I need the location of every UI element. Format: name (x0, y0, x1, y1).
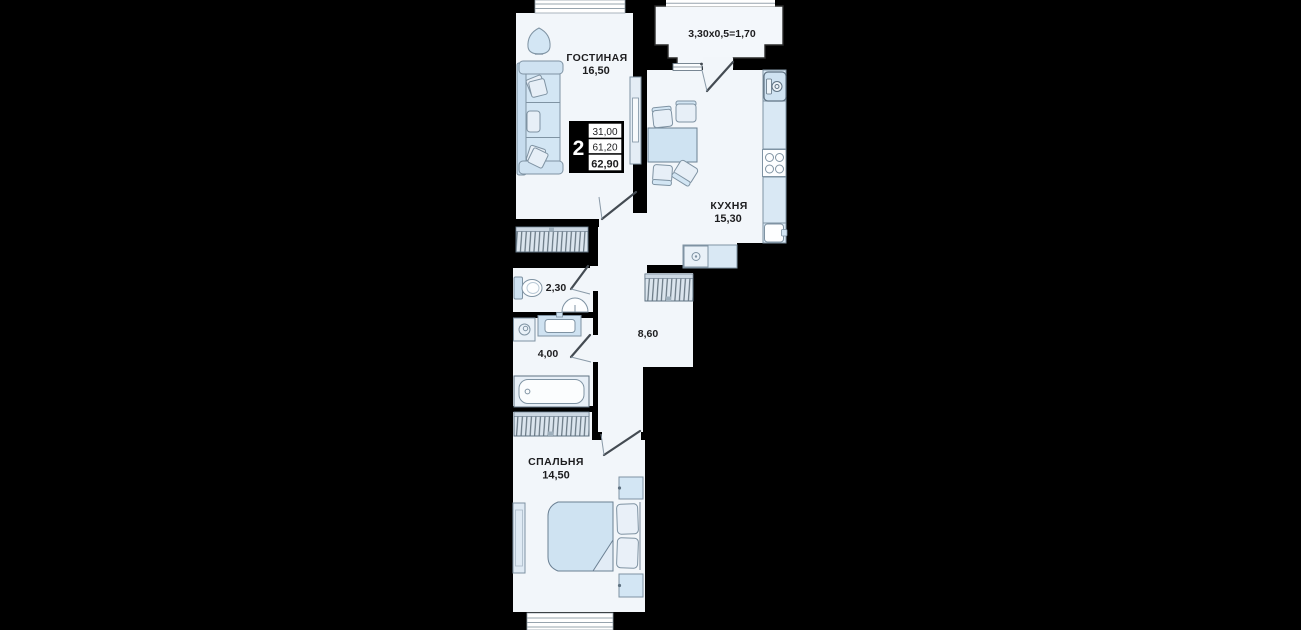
wardrobe-bedroom-icon (514, 412, 589, 436)
badge-total-area: 62,90 (591, 159, 619, 171)
floorplan-canvas: 2 31,00 61,20 62,90 (0, 0, 1301, 630)
sofa-icon (517, 61, 563, 175)
bathroom-door-opening (590, 335, 600, 362)
wc-door-opening (590, 266, 600, 291)
floorplan: 2 31,00 61,20 62,90 (0, 0, 1301, 630)
bedroom-window (527, 613, 613, 630)
chair-icon (652, 164, 672, 185)
living-window (535, 0, 625, 13)
badge-rooms-count: 2 (573, 137, 585, 160)
badge-living-area: 31,00 (592, 127, 617, 138)
kitchen-name: КУХНЯ (710, 200, 747, 212)
nightstand-icon (618, 477, 643, 499)
bedroom-name: СПАЛЬНЯ (528, 456, 584, 468)
living-room-name: ГОСТИНАЯ (566, 52, 627, 64)
kitchen-area: 15,30 (714, 213, 742, 225)
tv-stand-icon (630, 77, 641, 164)
dresser-icon (513, 503, 525, 573)
balcony-dimensions: 3,30x0,5=1,70 (688, 28, 756, 40)
dining-table-icon (648, 128, 697, 162)
living-room-area: 16,50 (582, 65, 610, 77)
bathtub-icon (514, 376, 589, 407)
wc-area: 2,30 (546, 282, 567, 294)
kitchen-sink-icon (765, 224, 788, 242)
washing-machine-icon (514, 318, 536, 341)
balcony-door-opening (703, 58, 733, 72)
bathroom-area: 4,00 (538, 348, 559, 360)
wardrobe-hall-right-icon (645, 274, 693, 301)
stove-icon (763, 150, 787, 177)
nightstand-icon (618, 574, 643, 597)
kitchen-lower-counter (683, 245, 737, 268)
fridge-icon (764, 72, 786, 101)
area-badge: 2 31,00 61,20 62,90 (569, 121, 624, 173)
wardrobe-hall-left-icon (516, 227, 588, 252)
kitchen-balcony-window (673, 63, 703, 71)
chair-icon (676, 101, 696, 122)
hall-area: 8,60 (638, 328, 659, 340)
bathroom-sink-icon (538, 313, 581, 337)
badge-area-without-balcony: 61,20 (592, 142, 617, 153)
bedroom-area: 14,50 (542, 470, 570, 482)
chair-icon (652, 106, 673, 128)
